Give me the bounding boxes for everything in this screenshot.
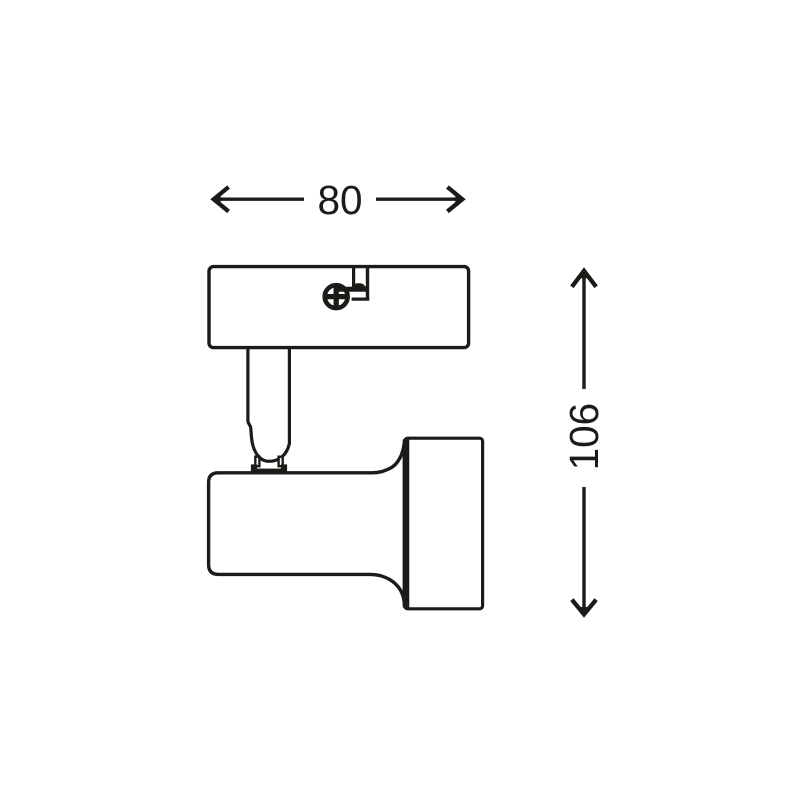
- svg-text:80: 80: [317, 177, 362, 223]
- svg-text:106: 106: [561, 403, 607, 471]
